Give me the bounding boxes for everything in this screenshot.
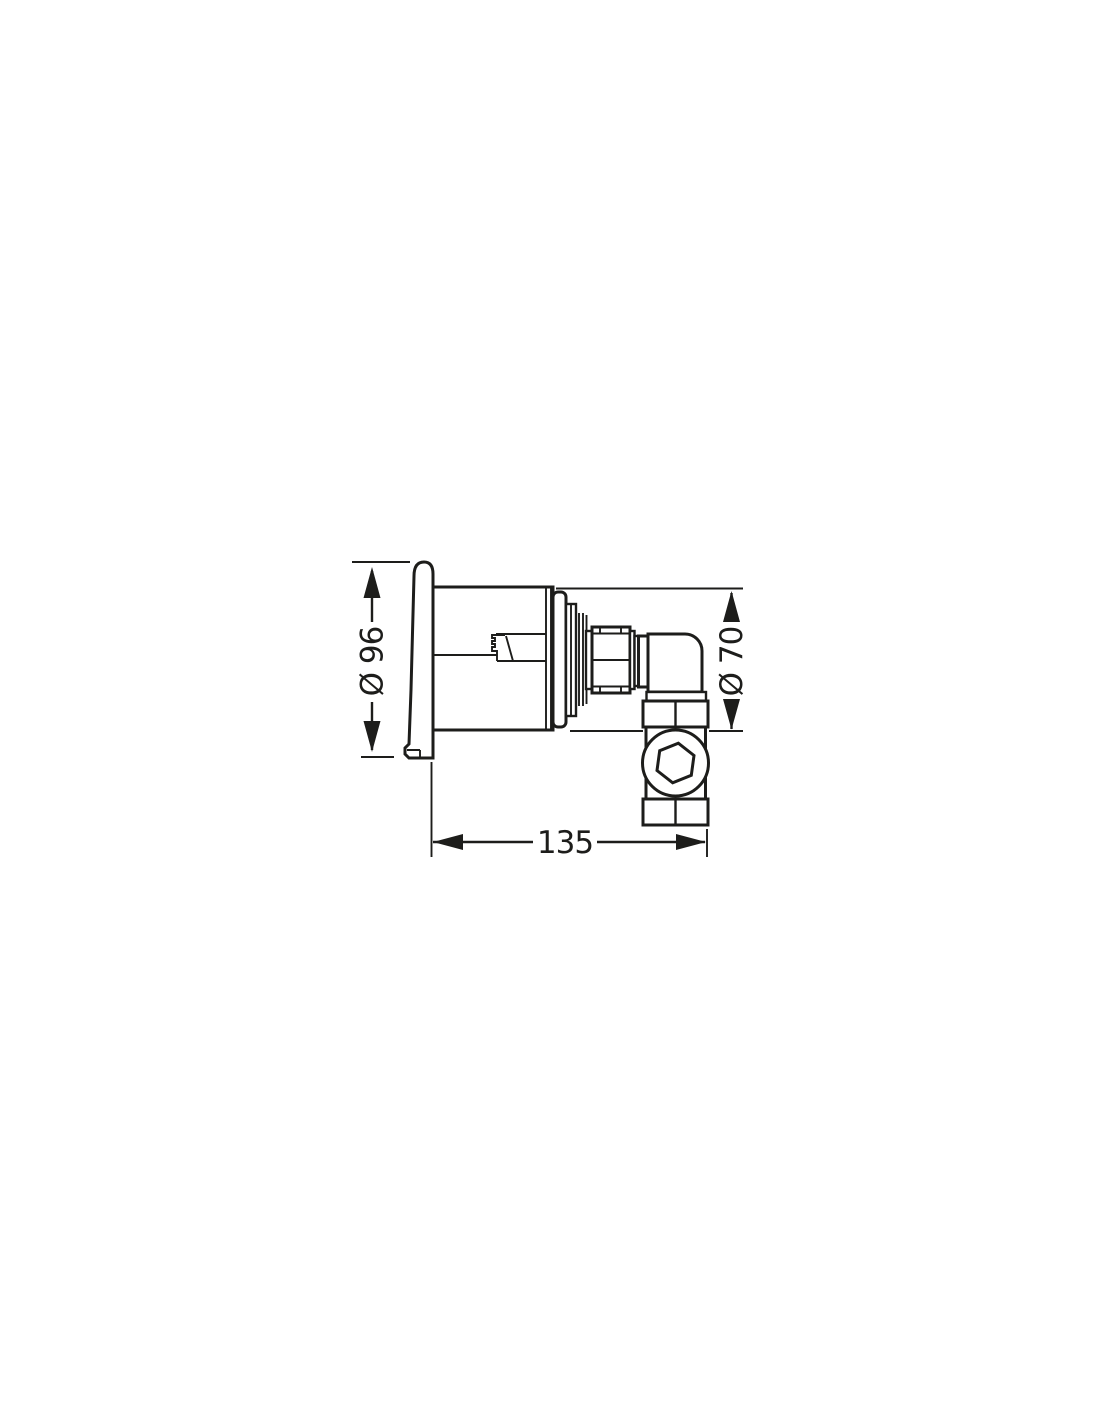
dim96-label: Ø 96 bbox=[355, 627, 391, 697]
concealed-body-sleeve bbox=[433, 587, 553, 730]
elbow-outline bbox=[648, 634, 702, 692]
angle-valve-body bbox=[643, 701, 709, 825]
compression-nut bbox=[586, 627, 639, 693]
fitting-side-view-drawing: Ø 96 Ø 70 135 bbox=[0, 0, 1100, 1422]
escutcheon-plate bbox=[405, 562, 433, 758]
dim70-arrowhead-down bbox=[723, 699, 740, 730]
dim96-arrowhead-up bbox=[364, 567, 381, 598]
union-thread-rings bbox=[553, 592, 587, 727]
escutcheon-outline bbox=[405, 562, 433, 758]
sleeve-outline bbox=[433, 587, 553, 730]
dim70-arrowhead-up bbox=[723, 591, 740, 622]
dim135-arrowhead-right bbox=[676, 834, 706, 850]
technical-drawing-canvas: Ø 96 Ø 70 135 bbox=[0, 0, 1100, 1422]
dim135-arrowhead-left bbox=[433, 834, 463, 850]
dim70-label: Ø 70 bbox=[714, 627, 750, 697]
dim135-label: 135 bbox=[537, 825, 593, 861]
dimension-diameter-96: Ø 96 bbox=[352, 562, 410, 757]
dim96-arrowhead-down bbox=[364, 721, 381, 752]
union-collar-ring bbox=[553, 592, 566, 727]
elbow-fitting bbox=[639, 634, 707, 701]
